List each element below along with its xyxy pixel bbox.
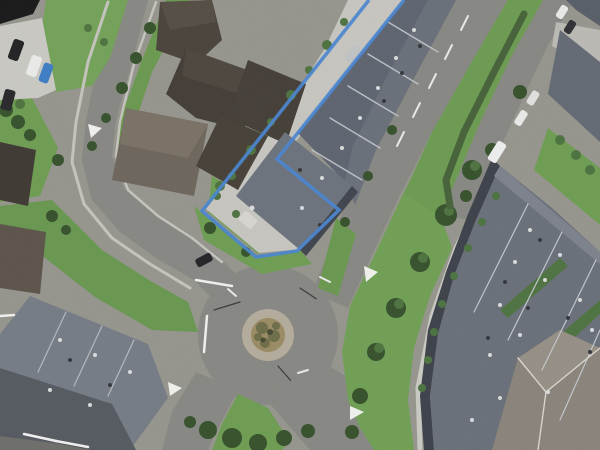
trees-dark [222, 428, 242, 448]
roof-vents-light [578, 298, 582, 302]
hedges-front-right [450, 272, 458, 280]
roof-vents-light [528, 228, 532, 232]
trees-dark [52, 154, 64, 166]
trees-dark [352, 388, 368, 404]
roof-vents-dark [108, 383, 112, 387]
hedges-front-right [492, 192, 500, 200]
trees-dark [204, 222, 216, 234]
roundabout-shrubs-dark [267, 329, 273, 335]
hedges-front-right [585, 165, 595, 175]
roof-vents-light [58, 338, 62, 342]
trees-light [232, 210, 240, 218]
house-west-mid [0, 224, 46, 294]
trees-dark [199, 421, 217, 439]
map-viewport[interactable] [0, 0, 600, 450]
trees-dark [301, 424, 315, 438]
trees-dark [276, 430, 292, 446]
trees-dark [130, 52, 142, 64]
roof-vents-dark [526, 306, 530, 310]
roof-vents-light [518, 333, 522, 337]
roof-vents-light [513, 260, 517, 264]
roof-vents-light [470, 418, 474, 422]
trees-dark [460, 190, 472, 202]
trees-light [374, 343, 384, 353]
trees-dark [340, 217, 350, 227]
roof-vents-light [358, 116, 362, 120]
roof-vents-light [412, 28, 416, 32]
roof-vents-light [498, 396, 502, 400]
roof-vents-light [546, 390, 550, 394]
trees-dark [61, 225, 71, 235]
trees-dark [345, 425, 359, 439]
hedges-front-right [571, 150, 581, 160]
trees-dark [513, 85, 527, 99]
roof-vents-dark [566, 316, 570, 320]
trees-dark [87, 141, 97, 151]
hedges-front-right [478, 218, 486, 226]
trees-dark [184, 416, 196, 428]
hedges-front-right [438, 300, 446, 308]
roof-vents-light [498, 303, 502, 307]
hedges-front-right [464, 244, 472, 252]
hedges-front-right [418, 384, 426, 392]
median-paint-lines [0, 315, 14, 316]
roof-vents-light [558, 253, 562, 257]
roof-vents-dark [418, 44, 422, 48]
roof-vents-light [376, 86, 380, 90]
pole-heads [290, 380, 293, 383]
roof-vents-dark [588, 350, 592, 354]
trees-dark [46, 210, 58, 222]
hedges-front-right [424, 356, 432, 364]
roof-vents-dark [400, 71, 404, 75]
roof-vents-light [340, 146, 344, 150]
trees-dark [24, 129, 36, 141]
trees-light [340, 18, 348, 26]
roof-vents-dark [503, 280, 507, 284]
trees-dark [101, 113, 111, 123]
roof-vents-dark [382, 99, 386, 103]
aerial-imagery [0, 0, 600, 450]
trees-light [394, 299, 404, 309]
roof-vents-light [93, 353, 97, 357]
roof-vents-light [394, 56, 398, 60]
roof-vents-light [320, 176, 324, 180]
roof-vents-light [300, 206, 304, 210]
trees-light [470, 161, 480, 171]
trees-dark [387, 125, 397, 135]
roundabout-shrubs [256, 322, 268, 334]
roof-vents-light [590, 328, 594, 332]
roof-vents-dark [298, 168, 302, 172]
roof-vents-light [128, 370, 132, 374]
roof-vents-light [543, 278, 547, 282]
roof-vents-light [250, 206, 255, 211]
roof-vents-light [488, 353, 492, 357]
trees-dark [144, 22, 156, 34]
trees-dark [11, 115, 25, 129]
hedges-front-right [555, 135, 565, 145]
pole-heads [316, 298, 319, 301]
trees-dark [116, 82, 128, 94]
trees-light [84, 24, 92, 32]
imagery-layers [0, 0, 600, 450]
hedges-front-right [430, 328, 438, 336]
trees-light [15, 99, 25, 109]
roof-vents-dark [68, 358, 72, 362]
roof-vents-dark [486, 336, 490, 340]
roundabout-shrubs [272, 322, 280, 330]
trees-dark [363, 171, 373, 181]
roof-vents-dark [538, 238, 542, 242]
trees-light [100, 38, 108, 46]
roof-vents-light [88, 403, 92, 407]
trees-light [418, 253, 428, 263]
roof-vents-light [48, 388, 52, 392]
roundabout-shrubs-dark [261, 338, 266, 343]
